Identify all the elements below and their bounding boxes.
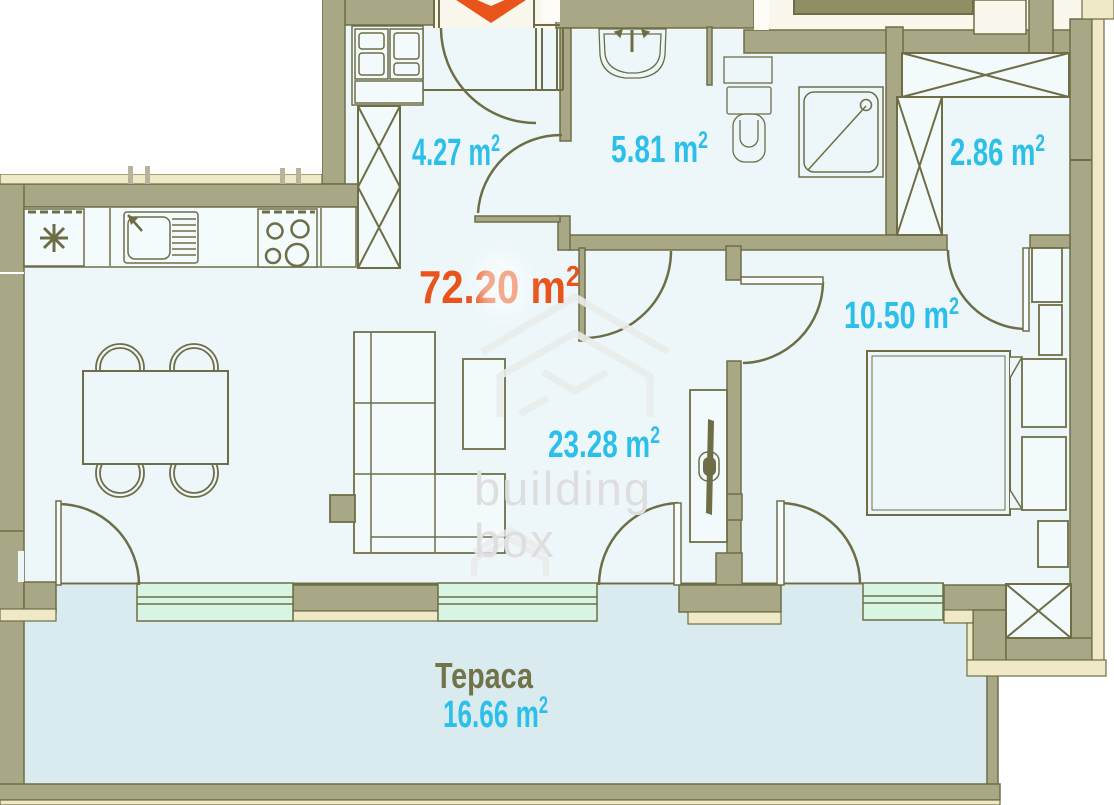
svg-text:building: building (474, 462, 652, 515)
svg-text:23.28 m2: 23.28 m2 (548, 422, 660, 466)
svg-text:5.81 m2: 5.81 m2 (611, 127, 708, 171)
svg-text:16.66 m2: 16.66 m2 (443, 692, 548, 736)
svg-text:2.86 m2: 2.86 m2 (950, 130, 1045, 174)
svg-text:Тераса: Тераса (435, 655, 534, 696)
svg-text:box: box (474, 514, 556, 567)
svg-text:4.27 m2: 4.27 m2 (412, 130, 500, 174)
svg-text:10.50 m2: 10.50 m2 (844, 293, 959, 337)
